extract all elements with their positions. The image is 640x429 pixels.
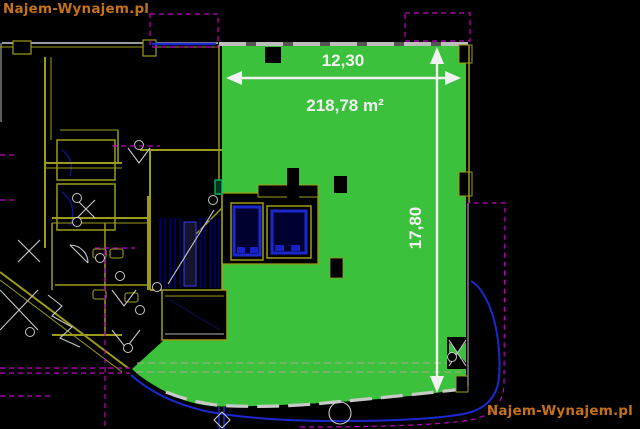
stair-landing-inset xyxy=(162,290,227,340)
section-marker-box xyxy=(405,13,470,41)
watermark-top-left: Najem-Wynajem.pl xyxy=(3,1,149,17)
stair-door xyxy=(215,180,222,194)
bowtie-column xyxy=(447,337,468,369)
width-dimension-label: 12,30 xyxy=(322,51,365,70)
watermark-bottom-right: Najem-Wynajem.pl xyxy=(487,403,633,419)
floor-plan-screenshot: 12,30 17,80 218,78 m² Najem-Wynajem.pl N… xyxy=(0,0,640,429)
door-tag xyxy=(448,353,457,362)
column xyxy=(287,168,299,198)
stair-stringer xyxy=(184,222,196,286)
floor-plan-canvas: 12,30 17,80 218,78 m² xyxy=(0,0,640,429)
area-label: 218,78 m² xyxy=(306,96,384,115)
door-swings xyxy=(0,148,150,348)
wall-stub xyxy=(13,41,31,54)
right-wall xyxy=(468,45,469,386)
height-dimension-label: 17,80 xyxy=(406,207,425,250)
section-marker-box xyxy=(150,14,218,47)
